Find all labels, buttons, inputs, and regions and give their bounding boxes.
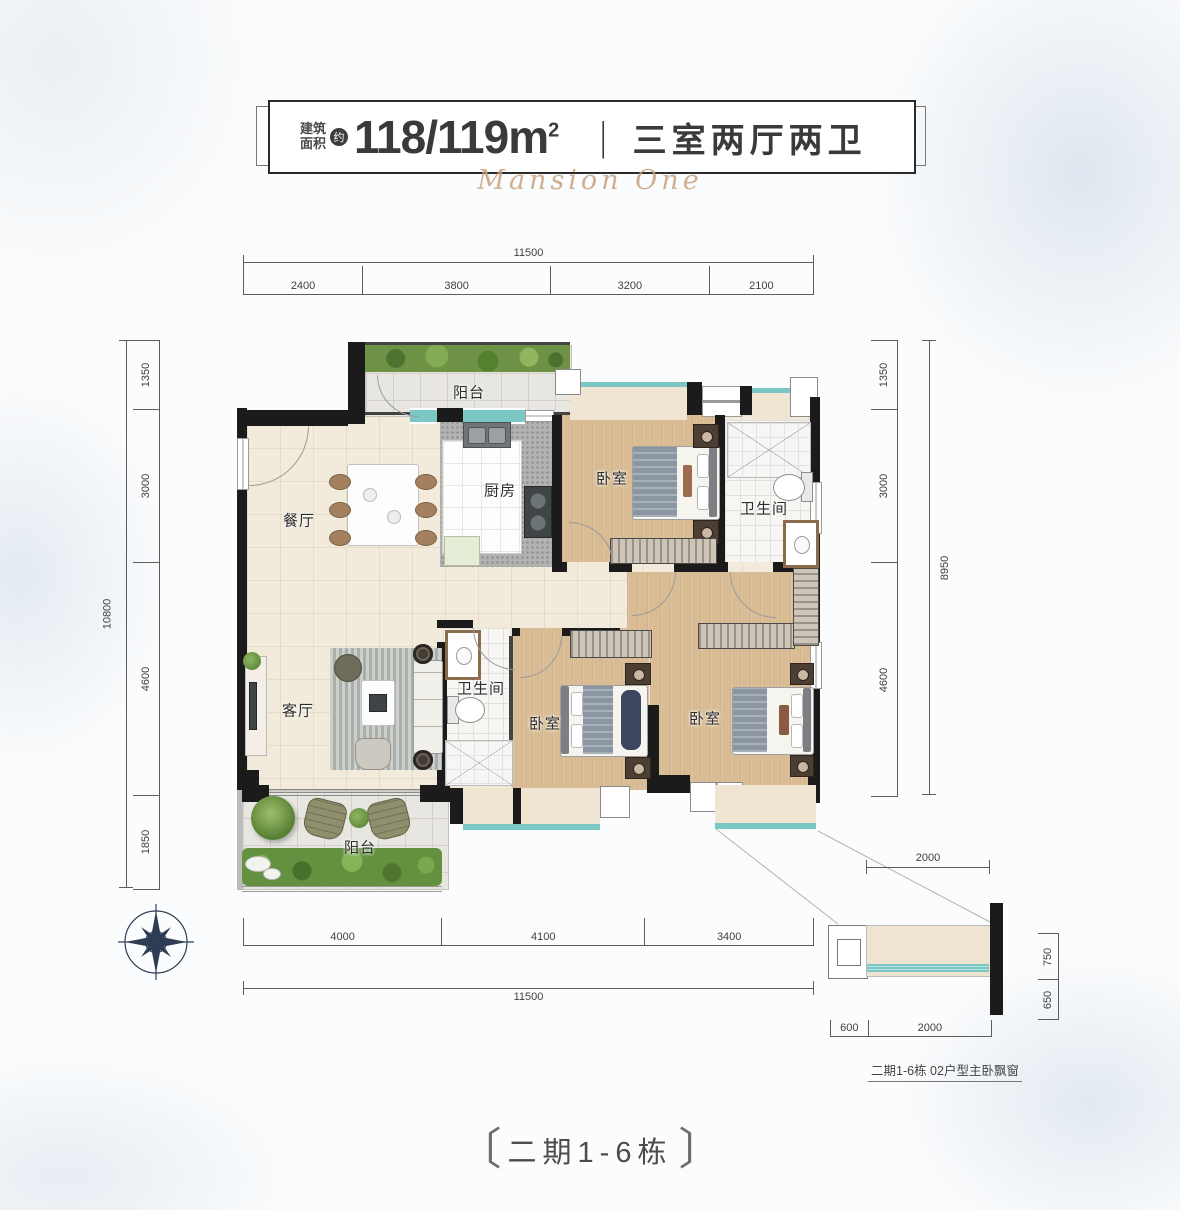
wall [552, 562, 567, 572]
approx-badge: 约 [330, 128, 348, 146]
dim-detail-top: 2000 [866, 851, 990, 868]
detail-bay-sill [866, 925, 992, 977]
detail-wall-bar [990, 903, 1003, 1015]
dim-segment: 2400 [243, 266, 363, 294]
wall [687, 382, 702, 415]
area-label-line2: 面积 [300, 137, 326, 152]
area-exponent: 2 [548, 120, 558, 142]
header-divider: | [601, 115, 606, 160]
shower [445, 740, 513, 786]
bed [632, 446, 720, 520]
dim-bottom-segments: 4000 4100 3400 [243, 918, 814, 946]
bay-window-master [715, 785, 816, 829]
bay-window-top [570, 382, 687, 420]
dim-segment: 1850 [133, 796, 159, 889]
room-label-living: 客厅 [282, 700, 314, 721]
nightstand [625, 663, 651, 685]
dim-segment: 3000 [871, 410, 897, 563]
dim-segment: 4100 [442, 918, 645, 945]
brand-watermark: Mansion One [340, 165, 840, 196]
wardrobe [570, 630, 652, 658]
sliding-door [269, 789, 420, 796]
background-marble [0, 1040, 320, 1210]
dim-bottom-total: 11500 [243, 945, 814, 989]
dim-segment: 650 [1038, 980, 1058, 1019]
wardrobe [698, 623, 795, 649]
column [555, 369, 581, 395]
room-label-bath-mid: 卫生间 [457, 678, 505, 699]
room-label-bedroom-master: 卧室 [689, 708, 721, 729]
floorplan-page: 建筑 面积 约 118/119m2 | 三室两厅两卫 Mansion One 1… [0, 0, 1180, 1210]
wall [437, 408, 463, 422]
dim-left-total: 10800 [112, 340, 127, 888]
window-frame [600, 786, 630, 818]
kitchen-cabinet [444, 536, 480, 566]
dim-right-segments: 1350 3000 4600 [871, 340, 898, 797]
bed [560, 685, 648, 757]
side-table [413, 750, 433, 770]
dim-segment: 2000 [869, 1020, 992, 1036]
plant [243, 652, 261, 670]
dim-segment: 3200 [551, 266, 710, 294]
footer-text: 二期1-6栋 [508, 1129, 673, 1171]
dining-chair [329, 474, 351, 490]
wall [348, 342, 365, 424]
plate [363, 488, 377, 502]
nightstand [693, 424, 719, 448]
dim-segment: 600 [830, 1020, 869, 1036]
dim-top-total: 11500 [243, 246, 814, 263]
nightstand [625, 757, 651, 779]
area-label: 建筑 面积 [300, 122, 326, 152]
wall [552, 415, 562, 572]
plant [349, 808, 369, 828]
armchair [355, 738, 391, 770]
background-marble [0, 0, 280, 300]
detail-caption: 二期1-6栋 02户型主卧飘窗 [868, 1060, 1022, 1082]
dim-segment: 1350 [133, 341, 159, 410]
header-plaque: 建筑 面积 约 118/119m2 | 三室两厅两卫 [268, 100, 916, 174]
shower [727, 422, 811, 478]
floor-bedroom-master [650, 572, 810, 790]
plant [251, 796, 295, 840]
dim-right-total: 8950 [897, 340, 930, 795]
footer-bracket-right: 〕 [678, 1128, 722, 1172]
dim-segment: 750 [1038, 934, 1058, 980]
footer-bracket-left: 〔 [458, 1128, 502, 1172]
dim-segment: 3400 [645, 918, 814, 945]
dining-chair [415, 502, 437, 518]
room-label-balcony-top: 阳台 [453, 382, 485, 403]
tv [249, 682, 257, 730]
wall [450, 788, 463, 824]
nightstand [790, 663, 814, 685]
dim-segment: 4600 [871, 563, 897, 796]
dining-chair [415, 474, 437, 490]
toilet [455, 697, 485, 723]
room-label-dining: 餐厅 [283, 510, 315, 531]
dim-segment: 4600 [133, 563, 159, 796]
wall [513, 788, 521, 824]
dim-segment: 3800 [363, 266, 551, 294]
dim-segment: 3000 [133, 410, 159, 562]
dining-chair [415, 530, 437, 546]
dining-table [347, 464, 419, 546]
dim-detail-bottom: 600 2000 [830, 1020, 992, 1037]
bed [732, 687, 814, 755]
detail-wall-section [828, 925, 868, 979]
dim-segment: 1350 [871, 341, 897, 410]
side-table [413, 644, 433, 664]
dim-detail-right: 750 650 [1038, 933, 1059, 1020]
background-marble [0, 360, 190, 790]
ottoman [334, 654, 362, 682]
wall [647, 775, 690, 793]
area-value: 118/119m2 [354, 114, 558, 160]
wall [365, 342, 570, 345]
footer-building-label: 〔 二期1-6栋 〕 [0, 1128, 1180, 1172]
layout-title: 三室两厅两卫 [633, 113, 867, 162]
bathroom-sink [783, 520, 819, 568]
wall [740, 386, 752, 415]
area-label-line1: 建筑 [300, 122, 326, 137]
dim-top-segments: 2400 3800 3200 2100 [243, 266, 814, 295]
coffee-table-tray [369, 694, 387, 712]
window-top [702, 386, 742, 417]
dim-segment: 2100 [710, 266, 814, 294]
room-label-balcony-bottom: 阳台 [344, 837, 376, 858]
room-label-bedroom-mid: 卧室 [529, 713, 561, 734]
plate [387, 510, 401, 524]
kitchen-sink [463, 422, 511, 448]
bay-window-bedroom-mid [463, 788, 600, 830]
balcony-railing [242, 886, 442, 892]
planter-balcony-top [365, 345, 570, 372]
bay-window-top-2 [752, 388, 790, 420]
hedge [242, 848, 442, 886]
stove [524, 486, 552, 538]
room-label-kitchen: 厨房 [484, 480, 516, 501]
sofa [413, 660, 443, 754]
compass-icon [118, 904, 194, 980]
rock [263, 868, 281, 880]
nightstand [790, 755, 814, 777]
window-kitchen [525, 410, 554, 422]
dining-chair [329, 502, 351, 518]
dim-segment: 4000 [243, 918, 442, 945]
window-left [237, 438, 249, 490]
dining-chair [329, 530, 351, 546]
wall [437, 620, 473, 628]
wardrobe [793, 568, 819, 646]
wall [237, 410, 348, 426]
room-label-bath-top: 卫生间 [740, 498, 788, 519]
room-label-bedroom-top: 卧室 [596, 468, 628, 489]
dim-left-segments: 1350 3000 4600 1850 [133, 340, 160, 890]
wall [420, 785, 450, 802]
floor-plan: 阳台 厨房 餐厅 卧室 卫生间 客厅 卫生间 卧室 卧室 阳台 [237, 342, 824, 895]
wardrobe [610, 538, 717, 564]
